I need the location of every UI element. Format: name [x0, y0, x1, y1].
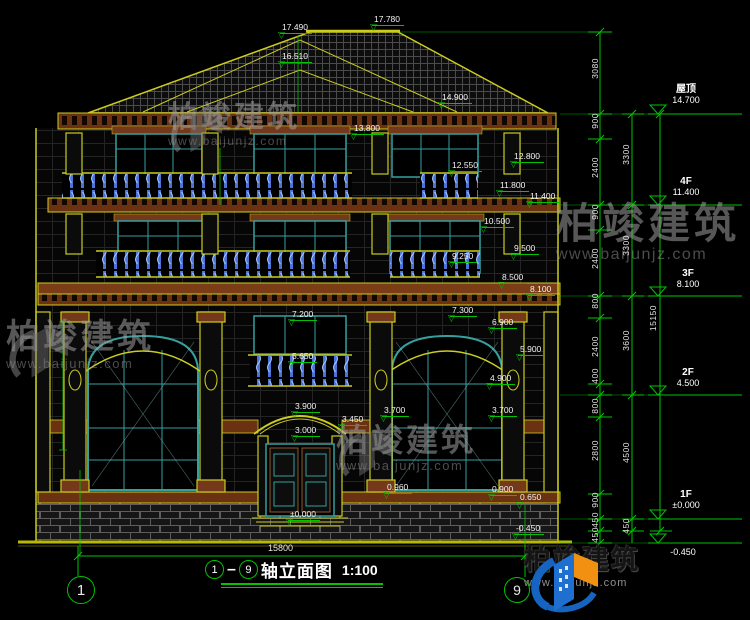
title-underline-thin — [221, 587, 383, 588]
elevation-mark: ±0.000 — [288, 509, 320, 521]
elevation-mark: 7.300 — [450, 305, 477, 317]
dim-overall-width: 15800 — [268, 543, 293, 553]
dim-overall-height: 15150 — [648, 305, 658, 331]
dim-segment: 3080 — [590, 58, 600, 79]
title-underline-thick — [221, 583, 383, 585]
dim-segment: 400 — [590, 368, 600, 384]
dim-floor-total: 3300 — [621, 144, 631, 165]
elevation-mark: 11.800 — [498, 180, 529, 192]
dim-segment: 450 — [590, 527, 600, 543]
elevation-mark: 3.000 — [293, 425, 320, 437]
elevation-mark: 0.960 — [385, 482, 412, 494]
elevation-mark: 17.490 — [280, 22, 312, 34]
elevation-mark: 3.700 — [490, 405, 517, 417]
elevation-mark: 12.800 — [512, 151, 544, 163]
elevation-mark: 10.500 — [482, 216, 514, 228]
floor-level-roof: 屋顶14.700 — [655, 84, 717, 106]
floor-level-2f: 2F4.500 — [657, 367, 719, 389]
title-scale: 1:100 — [342, 562, 378, 578]
dim-segment: 900 — [590, 492, 600, 508]
elevation-mark: -0.450 — [514, 523, 544, 535]
elevation-mark: 9.250 — [450, 251, 477, 263]
dim-floor-total: 3300 — [621, 235, 631, 256]
elevation-mark: 16.510 — [280, 51, 312, 63]
dim-segment: 800 — [590, 398, 600, 414]
elevation-mark: 3.900 — [293, 401, 320, 413]
floor-level-1f: 1F±0.000 — [655, 489, 717, 511]
elevation-mark: 8.500 — [500, 272, 527, 284]
floor-level-3f: 3F8.100 — [657, 268, 719, 290]
elevation-mark: 8.100 — [528, 284, 555, 296]
elevation-mark: 5.650 — [290, 351, 317, 363]
dim-segment: 2800 — [590, 440, 600, 461]
dim-segment: 2400 — [590, 248, 600, 269]
dim-segment: 900 — [590, 113, 600, 129]
brand-logo: 柏竣建筑 www.baijunjz.com — [524, 547, 640, 589]
brand-logo-icon — [524, 547, 616, 613]
elevation-mark: 5.900 — [518, 344, 545, 356]
dim-segment: 800 — [590, 293, 600, 309]
elevation-mark: 11.400 — [528, 191, 559, 203]
elevation-mark: 9.500 — [512, 243, 539, 255]
dim-segment: 2400 — [590, 157, 600, 178]
dim-segment: 450 — [590, 512, 600, 528]
title-text: 轴立面图 — [261, 557, 333, 582]
floor-level-base: -0.450 — [652, 547, 714, 558]
axis-bubble-9-inline: 9 — [239, 560, 258, 579]
elevation-mark: 12.550 — [450, 160, 482, 172]
elevation-mark: 13.800 — [352, 123, 384, 135]
elevation-drawing-canvas: 17.780 17.490 16.510 14.900 13.800 12.80… — [0, 0, 750, 620]
elevation-mark: 14.900 — [440, 92, 472, 104]
axis-bubble-1-inline: 1 — [205, 560, 224, 579]
elevation-mark: 0.900 — [490, 484, 517, 496]
facade-linework — [0, 0, 750, 620]
elevation-mark: 0.650 — [518, 492, 545, 504]
dim-floor-total: 3600 — [621, 330, 631, 351]
dim-floor-total: 4500 — [621, 442, 631, 463]
dim-floor-total: 450 — [621, 518, 631, 534]
elevation-mark: 3.450 — [340, 414, 367, 426]
drawing-title: 1 – 9 轴立面图 1:100 — [205, 557, 378, 582]
elevation-mark: 3.700 — [382, 405, 409, 417]
elevation-mark: 6.900 — [490, 317, 517, 329]
dim-segment: 900 — [590, 204, 600, 220]
elevation-mark: 17.780 — [372, 14, 404, 26]
elevation-mark: 4.900 — [488, 373, 515, 385]
axis-bubble-1: 1 — [67, 576, 95, 604]
elevation-mark: 7.200 — [290, 309, 317, 321]
axis-range-dash: – — [227, 561, 236, 579]
floor-level-4f: 4F11.400 — [655, 176, 717, 198]
dim-segment: 2400 — [590, 336, 600, 357]
